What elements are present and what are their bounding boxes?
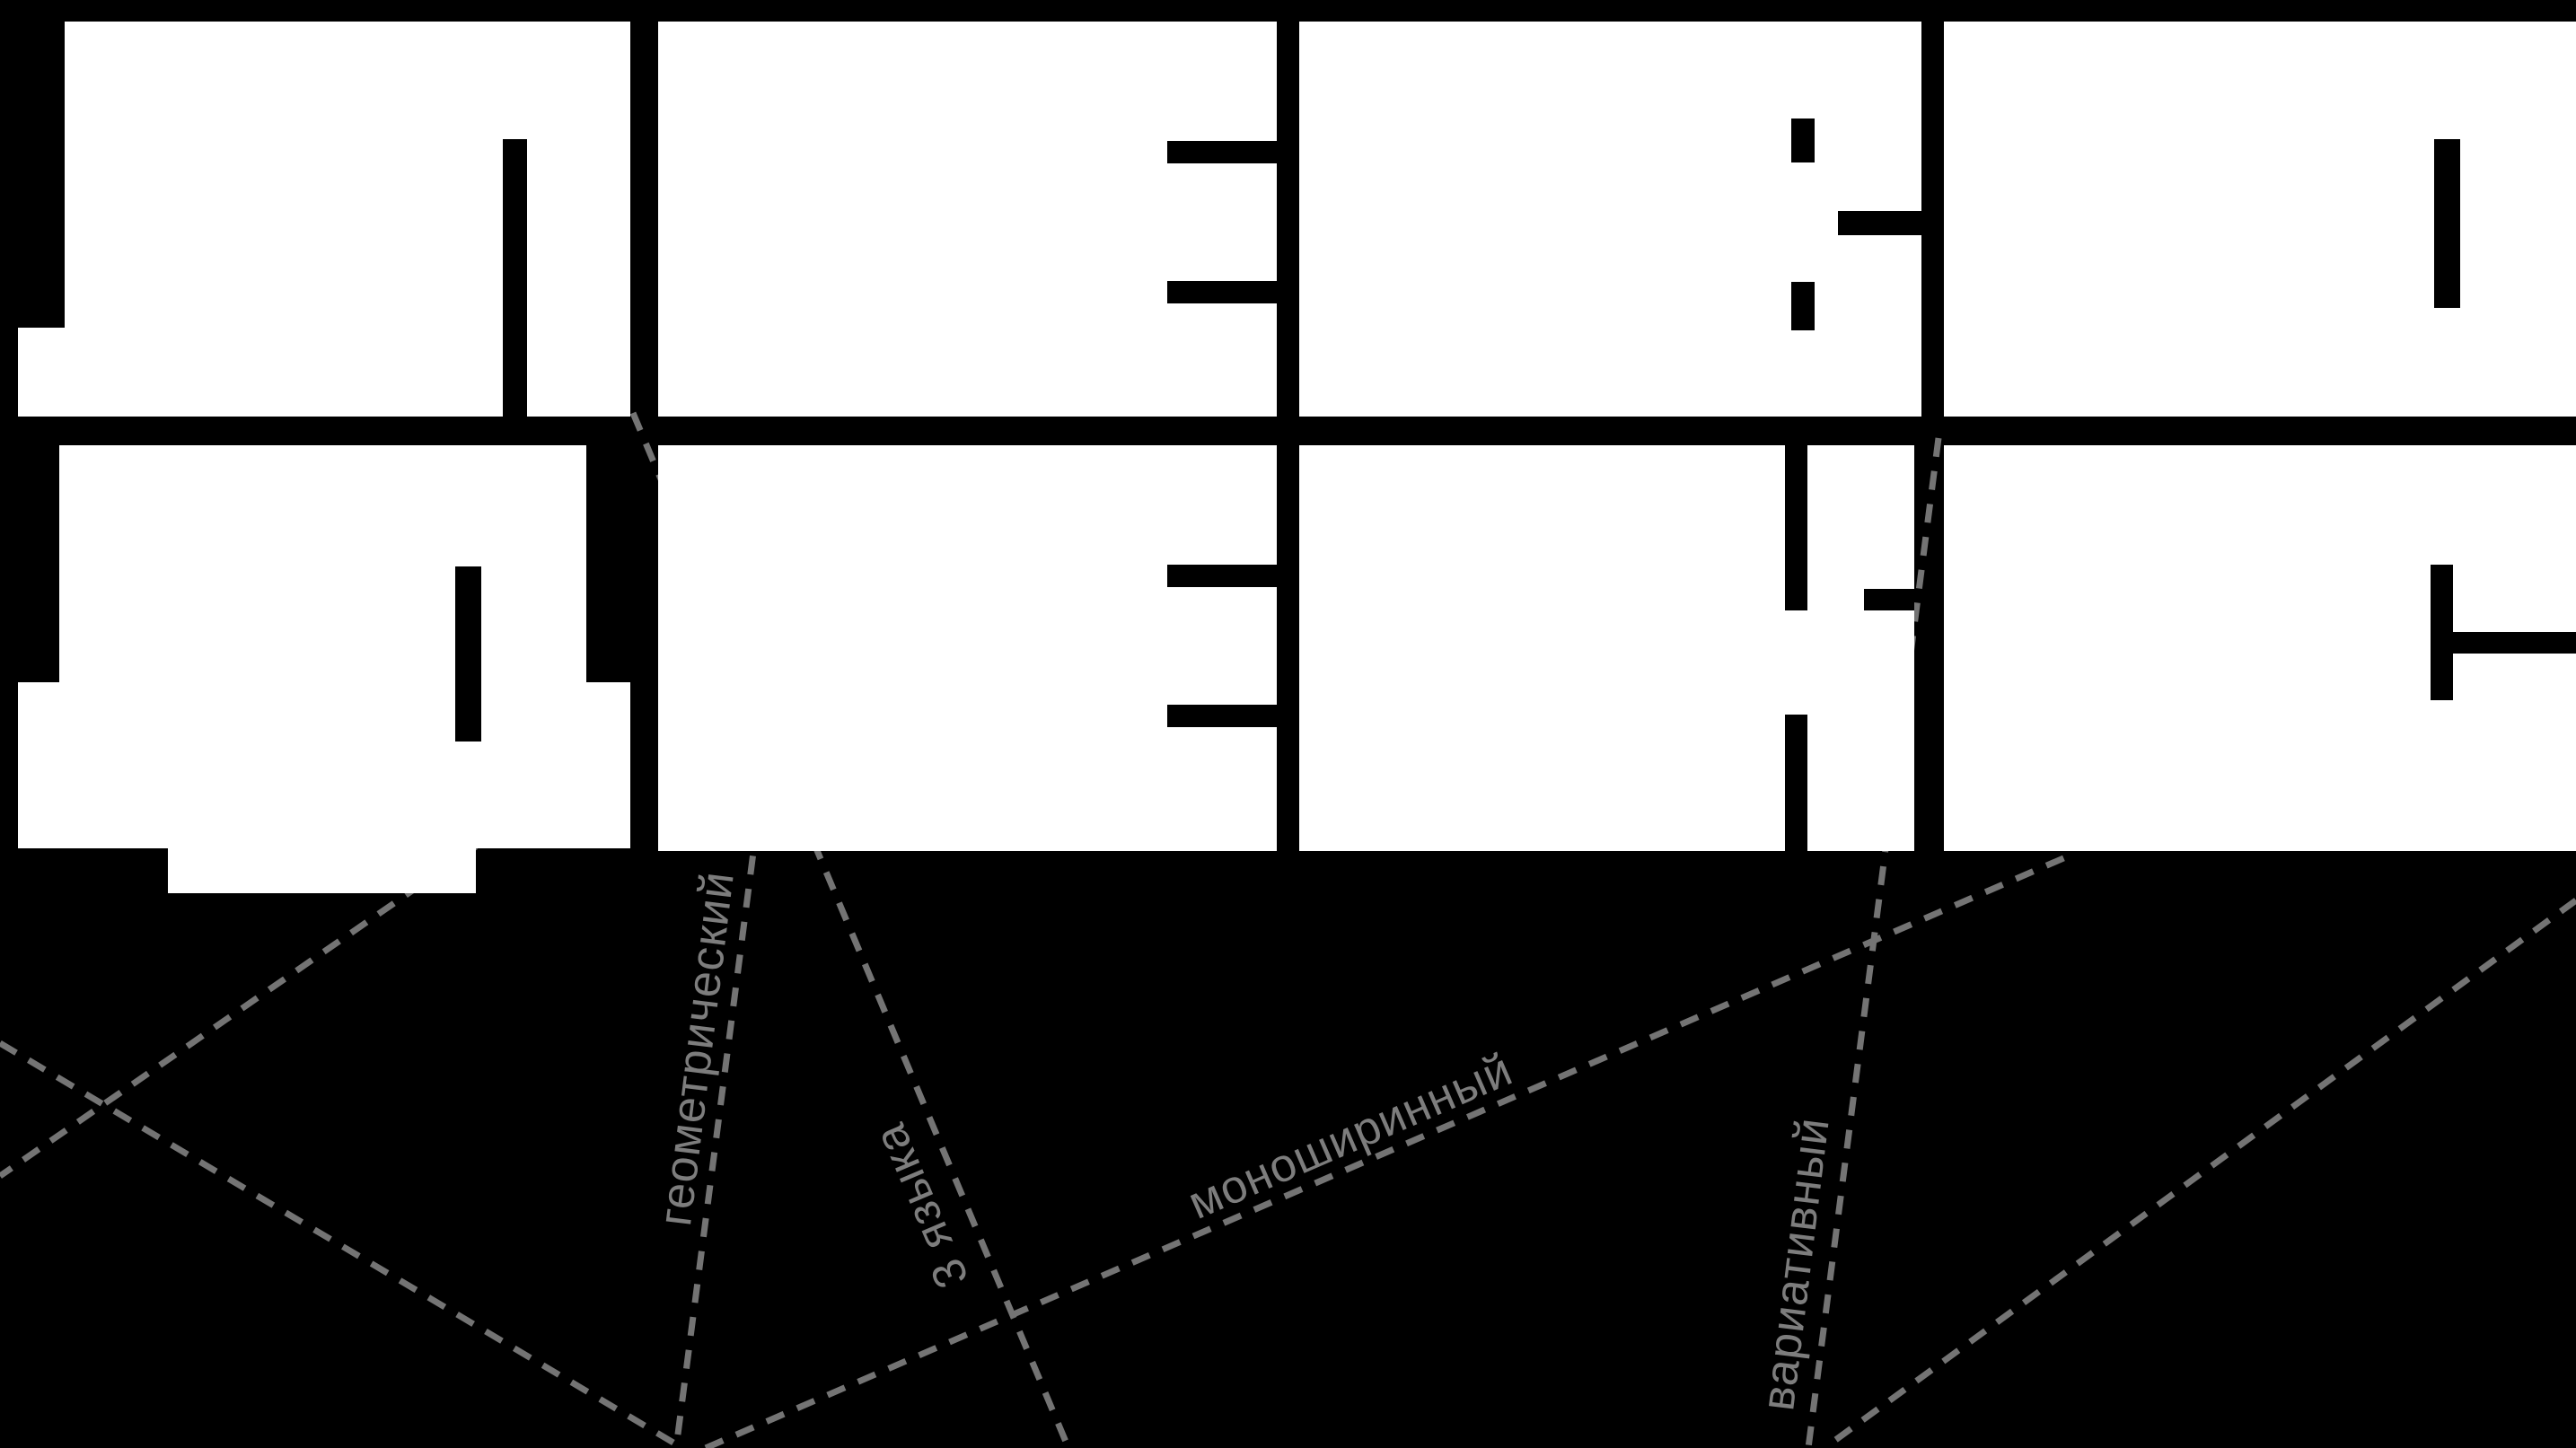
glyph-L bbox=[18, 22, 630, 417]
glyph-D bbox=[18, 445, 630, 893]
type-specimen-poster: геометрический 3 языка моноширинный вари… bbox=[0, 0, 2576, 1448]
glyph-E1 bbox=[658, 22, 1277, 417]
glyph-O bbox=[1944, 22, 2576, 417]
glyph-E2 bbox=[658, 445, 1277, 851]
glyph-S bbox=[1944, 445, 2576, 851]
glyph-V bbox=[1299, 22, 1921, 417]
glyph-K bbox=[1299, 445, 1914, 851]
specimen-canvas: геометрический 3 языка моноширинный вари… bbox=[0, 0, 2576, 1448]
